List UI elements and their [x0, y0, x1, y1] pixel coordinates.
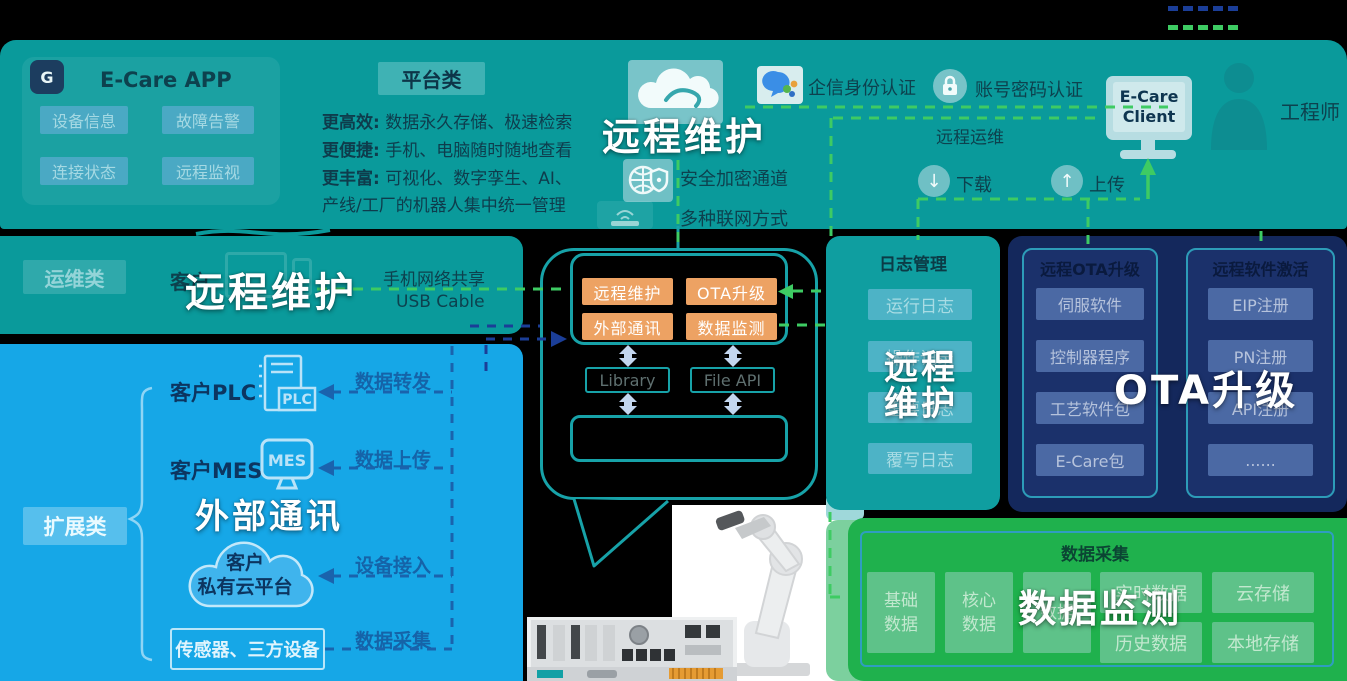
monitor-base [1120, 150, 1176, 159]
wechat-auth-label: 企信身份认证 [808, 74, 916, 100]
feature-line-3: 更丰富: 可视化、数字孪生、AI、 [322, 164, 572, 189]
module-remote-maintenance[interactable]: 远程维护 [582, 278, 673, 305]
diagram-stage: G E-Care APP 设备信息 故障告警 连接状态 远程监视 平台类 更高效… [0, 0, 1347, 681]
svg-text:PLC: PLC [282, 392, 311, 408]
remote-maintenance-overlay-ops: 远程维护 [185, 260, 357, 318]
lock-icon [933, 69, 967, 103]
plc-icon: PLC [255, 352, 319, 422]
bubble-base-box [570, 415, 788, 462]
plc-label: 客户PLC [170, 377, 256, 407]
data-panel-title: 数据采集 [1045, 540, 1145, 565]
link-label-data-collect: 数据采集 [355, 626, 431, 653]
mes-label: 客户MES [170, 455, 262, 485]
module-ota-upgrade[interactable]: OTA升级 [686, 278, 777, 305]
usb-cable-label: USB Cable [396, 292, 485, 312]
module-data-monitor[interactable]: 数据监测 [686, 313, 777, 340]
remote-maintenance-overlay-log-2: 维护 [884, 376, 958, 425]
ota-button-more[interactable]: ...... [1208, 444, 1313, 476]
app-button-device-info[interactable]: 设备信息 [40, 106, 128, 134]
engineer-label: 工程师 [1280, 96, 1340, 125]
ecare-client-screen: E-Care Client [1113, 82, 1185, 132]
extend-badge: 扩展类 [23, 507, 127, 545]
platform-badge: 平台类 [378, 62, 485, 95]
link-label-data-upload: 数据上传 [355, 445, 431, 472]
link-label-data-forward: 数据转发 [355, 367, 431, 394]
network-modes-label: 多种联网方式 [680, 205, 788, 231]
ota-button-ecare-pkg[interactable]: E-Care包 [1036, 444, 1144, 476]
secure-channel-label: 安全加密通道 [680, 165, 788, 191]
download-label: 下载 [956, 171, 992, 197]
password-auth-label: 账号密码认证 [975, 76, 1083, 102]
ota-left-title: 远程OTA升级 [1026, 256, 1154, 280]
legend-dash-green [1168, 25, 1238, 30]
private-cloud-label-2: 私有云平台 [195, 572, 295, 599]
data-wide-cloud-storage[interactable]: 云存储 [1212, 572, 1314, 613]
external-comm-overlay: 外部通讯 [195, 489, 343, 538]
upload-icon: ↑ [1051, 165, 1083, 197]
upload-label: 上传 [1089, 171, 1125, 197]
ota-button-servo[interactable]: 伺服软件 [1036, 288, 1144, 320]
controller-cabinet-photo [527, 617, 737, 681]
wechat-auth-icon [757, 66, 803, 104]
app-button-remote-monitor[interactable]: 远程监视 [162, 157, 254, 185]
log-button-overwrite-log[interactable]: 覆写日志 [868, 443, 972, 474]
bubble-tail [574, 499, 668, 566]
ops-badge: 运维类 [23, 260, 126, 294]
sensor-box[interactable]: 传感器、三方设备 [170, 628, 325, 670]
module-external-comm[interactable]: 外部通讯 [582, 313, 673, 340]
download-icon: ↓ [918, 165, 950, 197]
remote-ops-label: 远程运维 [936, 123, 1004, 148]
feature-line-2: 更便捷: 手机、电脑随时随地查看 [322, 136, 572, 161]
legend-dash-navy [1168, 6, 1238, 11]
remote-maintenance-overlay-top: 远程维护 [602, 106, 766, 161]
network-share-label: 手机网络共享 [383, 265, 485, 290]
private-cloud-label-1: 客户 [195, 548, 295, 575]
data-wide-local-storage[interactable]: 本地存储 [1212, 622, 1314, 663]
data-monitor-overlay: 数据监测 [1018, 578, 1182, 633]
library-box: Library [585, 367, 670, 393]
feature-line-4: 产线/工厂的机器人集中统一管理 [322, 191, 566, 216]
svg-text:MES: MES [268, 451, 306, 470]
wifi-router-icon [597, 201, 653, 229]
ota-upgrade-overlay: OTA升级 [1114, 358, 1298, 416]
swoosh-decoration [196, 230, 330, 234]
app-title: E-Care APP [100, 68, 232, 92]
file-api-box: File API [690, 367, 775, 393]
app-button-connection-status[interactable]: 连接状态 [40, 157, 128, 185]
data-square-basic[interactable]: 基础数据 [867, 572, 935, 653]
engineer-icon [1203, 55, 1275, 150]
ota-button-eip[interactable]: EIP注册 [1208, 288, 1313, 320]
app-logo-icon: G [30, 60, 64, 94]
feature-line-1: 更高效: 数据永久存储、极速检索 [322, 108, 572, 133]
link-label-device-access: 设备接入 [355, 551, 431, 578]
log-button-run-log[interactable]: 运行日志 [868, 289, 972, 320]
ota-right-title: 远程软件激活 [1190, 256, 1331, 280]
log-panel-title: 日志管理 [850, 250, 976, 275]
secure-channel-icon [623, 159, 673, 202]
data-square-core[interactable]: 核心数据 [945, 572, 1013, 653]
app-button-fault-alarm[interactable]: 故障告警 [162, 106, 254, 134]
